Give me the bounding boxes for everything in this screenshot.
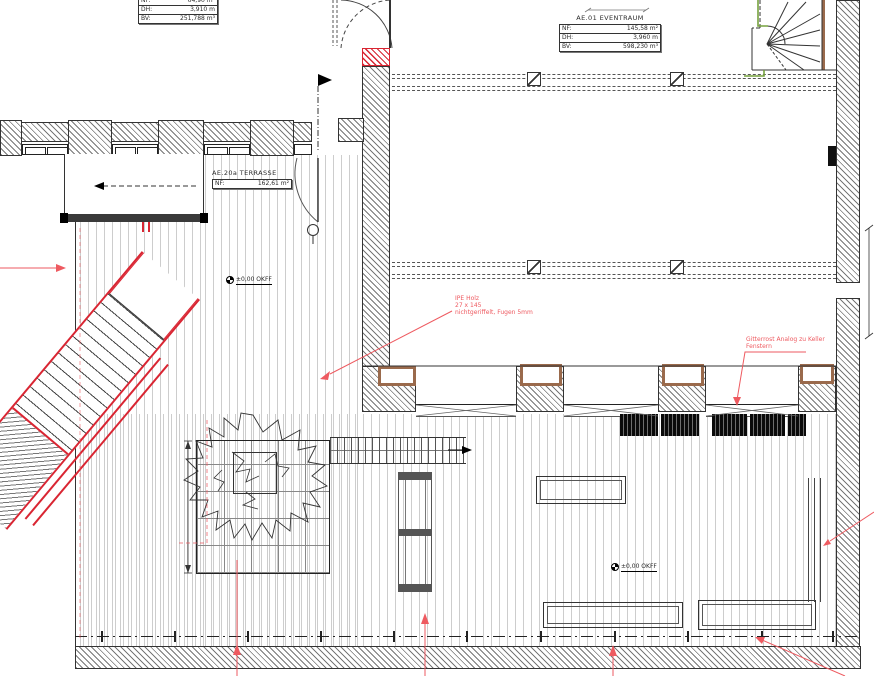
axis-tick [101, 631, 103, 642]
east-wall-opening [836, 282, 860, 299]
level-marker-icon [611, 563, 619, 571]
wall-pier [158, 120, 204, 156]
cellar-window-sill [416, 404, 516, 417]
wall-step [338, 118, 364, 142]
window-niche [800, 364, 834, 384]
south-wall [75, 646, 861, 669]
level-marker-icon [226, 276, 234, 284]
platform-end-block [200, 213, 208, 223]
corner-rail-line [808, 478, 809, 602]
stair-wall-brown-line [822, 0, 825, 70]
red-marker [148, 222, 150, 232]
window-niche [378, 366, 416, 386]
eventroom-west-wall [362, 66, 390, 412]
table-row: NF:145,58 m² [560, 25, 660, 33]
ceiling-beam [392, 86, 836, 87]
axis-tick [687, 631, 689, 642]
table-row: NF:162,61 m² [213, 180, 291, 188]
level-marker-terrace: ±0,00 OKFF [226, 276, 272, 285]
ceiling-beam [392, 90, 836, 91]
table-row: BV:598,230 m³ [560, 42, 660, 51]
axis-tick [832, 631, 834, 642]
ceiling-beam [392, 78, 836, 79]
column-symbol [670, 72, 684, 86]
window-niche [520, 364, 562, 386]
column-symbol [527, 260, 541, 274]
ceiling-beam [392, 278, 836, 279]
axis-tick [247, 631, 249, 642]
terrace-fixture [398, 472, 432, 592]
axis-tick [174, 631, 176, 642]
platform [64, 154, 204, 214]
window-sill [294, 144, 312, 155]
table-row: DH:3,960 m [560, 33, 660, 42]
grating-strip [750, 414, 785, 436]
room-label-terrasse: AE.20a TERRASSE NF:162,61 m² [212, 169, 302, 189]
bench [536, 476, 626, 504]
corner-rail-line [814, 478, 815, 602]
winder-stair [752, 0, 822, 70]
wall-pier [68, 120, 112, 156]
axis-line [75, 636, 861, 637]
table-row: DH:3,910 m [139, 5, 217, 14]
platform-edge-band [60, 214, 208, 222]
corner-rail-line [820, 478, 821, 602]
axis-tick [393, 631, 395, 642]
annotation-ipe: IPE Holz 27 x 145 nichtgeriffelt, Fugen … [455, 296, 533, 317]
bench [543, 602, 683, 628]
planter-inner-frame [233, 452, 277, 494]
east-wall [836, 0, 860, 648]
ceiling-beam [392, 266, 836, 267]
east-wall-inset [828, 146, 836, 166]
room-title: AE.01 EVENTRAUM [552, 14, 668, 22]
grating-strip [712, 414, 747, 436]
room-label-eventraum: AE.01 EVENTRAUM NF:145,58 m² DH:3,960 m … [552, 14, 668, 52]
wall-pier [250, 120, 294, 156]
ceiling-beam [392, 74, 836, 75]
window-niche [662, 364, 704, 386]
ceiling-beam [392, 274, 836, 275]
window-sill [22, 144, 68, 155]
column-symbol [670, 260, 684, 274]
grating-strip [788, 414, 806, 436]
room-table-upper-left: NF:64,90 m² DH:3,910 m BV:251,788 m³ [138, 0, 218, 24]
ceiling-beam [392, 262, 836, 263]
wall-segment-red [362, 48, 390, 66]
floor-plan-canvas: NF:64,90 m² DH:3,910 m BV:251,788 m³ AE.… [0, 0, 874, 676]
table-row: BV:251,788 m³ [139, 14, 217, 23]
grating-strip [661, 414, 699, 436]
axis-tick [761, 631, 763, 642]
red-marker [142, 222, 144, 232]
axis-tick [614, 631, 616, 642]
grating-strip [620, 414, 658, 436]
level-marker-lower: ±0,00 OKFF [611, 563, 657, 572]
terrace-stair [330, 437, 466, 464]
wall-pier [0, 120, 22, 156]
platform-end-block [60, 213, 68, 223]
window-sill [204, 144, 250, 155]
bench-corner [698, 600, 816, 630]
column-symbol [527, 72, 541, 86]
room-title: AE.20a TERRASSE [212, 169, 302, 177]
annotation-gitterrost: Gitterrost Analog zu Keller Fenstern [746, 337, 825, 351]
section-flag-icon [318, 74, 332, 86]
axis-tick [540, 631, 542, 642]
axis-tick [320, 631, 322, 642]
axis-tick [466, 631, 468, 642]
